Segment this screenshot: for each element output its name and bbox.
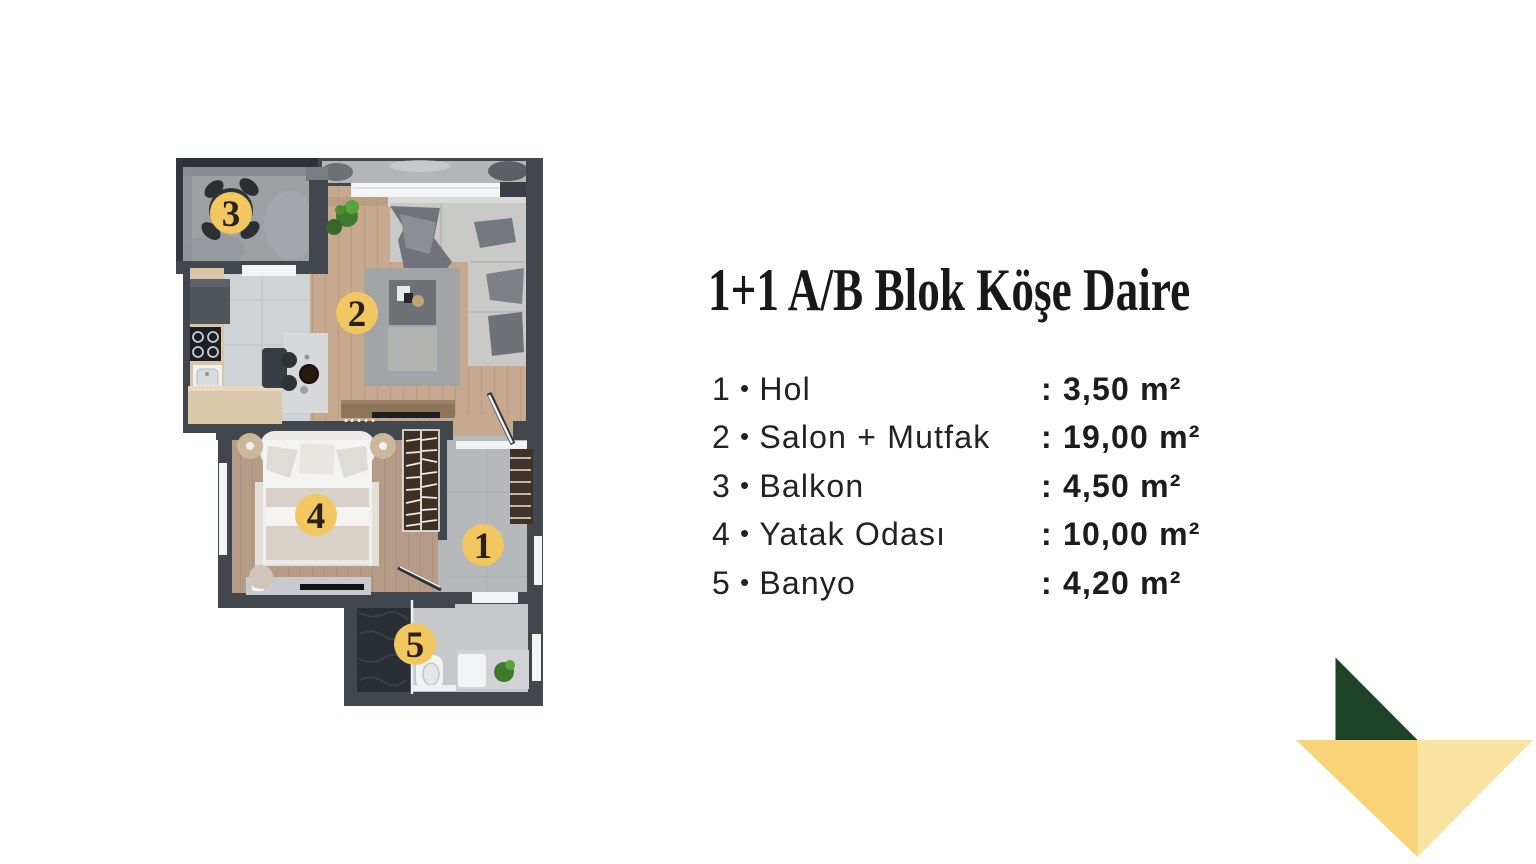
svg-text:1: 1: [474, 526, 493, 567]
svg-text:5: 5: [406, 625, 425, 666]
svg-text:2: 2: [348, 294, 367, 335]
svg-text:4: 4: [307, 496, 326, 537]
svg-text:3: 3: [222, 194, 241, 235]
